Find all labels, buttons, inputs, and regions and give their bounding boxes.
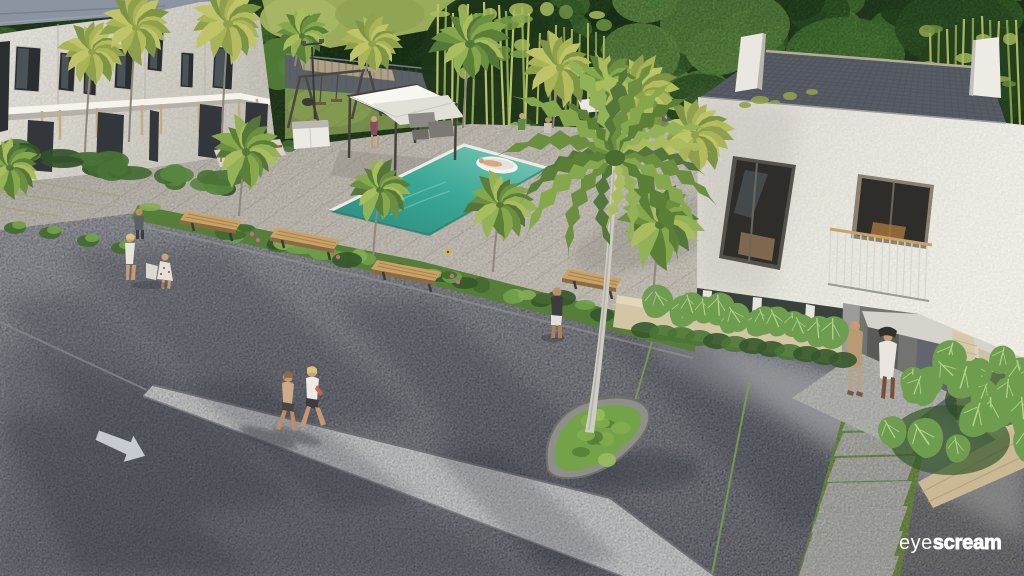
svg-text:eyescream: eyescream (899, 532, 1002, 554)
